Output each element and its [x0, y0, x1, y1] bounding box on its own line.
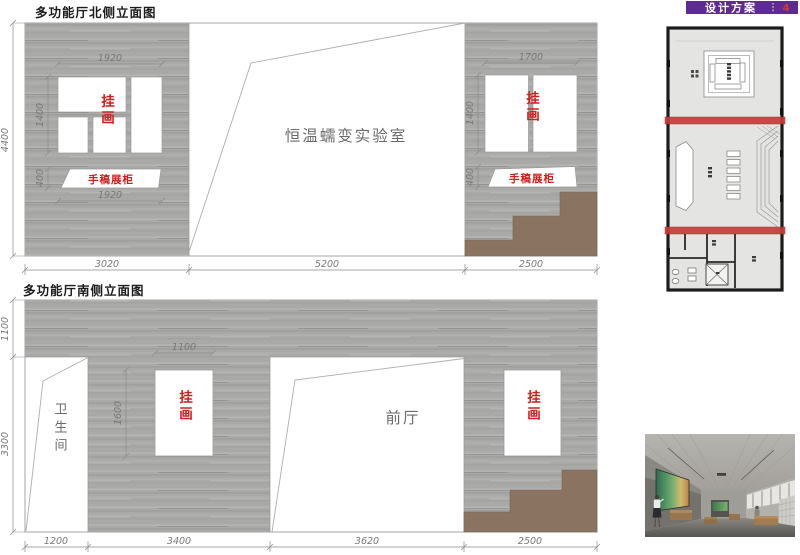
dim-north-right-cabinet: 400: [465, 168, 476, 186]
south-elevation: 多功能厅南侧立面图 卫生间 前厅 挂画 1100 1600 挂画: [0, 283, 600, 552]
north-right-cabinet-label: 手稿展柜: [509, 172, 555, 185]
dim-north-bottom-2: 5200: [315, 259, 339, 270]
north-title: 多功能厅北侧立面图: [35, 5, 157, 20]
banner-page-number: 4: [783, 3, 790, 14]
dim-south-art-width: 1100: [172, 342, 196, 353]
dim-north-bottom-1: 3020: [95, 259, 119, 270]
dim-south-bottom-1: 1200: [44, 536, 68, 547]
drawing-canvas: 设计方案 4 多功能厅北侧立面图 恒温蠕变实验室 挂画 手稿展柜: [0, 0, 800, 555]
dim-south-left-1: 1100: [0, 317, 11, 341]
plan-stage: [676, 142, 693, 211]
dim-north-right-width-top: 1700: [519, 52, 543, 63]
dim-north-left-cabinet: 400: [35, 169, 46, 187]
interior-render-photo: [645, 434, 795, 537]
dim-south-bottom-4: 2500: [518, 536, 542, 547]
north-total-dim-line: [10, 20, 25, 259]
foyer-label: 前厅: [385, 409, 420, 427]
plan-section-band-top: [665, 117, 785, 124]
north-elevation: 多功能厅北侧立面图 恒温蠕变实验室 挂画 手稿展柜 1920 1400 400 …: [0, 5, 600, 275]
banner-title: 设计方案: [705, 1, 757, 15]
dim-south-bottom-2: 3400: [167, 536, 191, 547]
floor-plan: [665, 28, 785, 290]
projector: [717, 473, 726, 476]
south-bottom-dim-line: [22, 541, 600, 552]
bathroom-label: 卫生间: [52, 402, 68, 456]
dim-south-art-height: 1600: [113, 401, 124, 425]
back-artwork: [713, 502, 728, 511]
banner: 设计方案 4: [686, 1, 798, 15]
north-lab-label: 恒温蠕变实验室: [285, 127, 408, 145]
dim-north-left-height: 1400: [35, 103, 46, 127]
south-title: 多功能厅南侧立面图: [23, 283, 145, 298]
dim-north-left-width-top: 1920: [98, 53, 122, 64]
south-top-wood-band: [25, 300, 597, 357]
dim-north-left-width-bottom: 1920: [98, 190, 122, 201]
dim-north-total-height: 4400: [0, 128, 11, 152]
dim-south-left-2: 3300: [0, 432, 11, 456]
plan-section-band-bottom: [665, 227, 785, 234]
lattice-screen: [779, 495, 795, 528]
north-left-art-label: 挂画: [98, 93, 115, 127]
design-sheet: 设计方案 4 多功能厅北侧立面图 恒温蠕变实验室 挂画 手稿展柜: [0, 0, 800, 555]
north-right-art-label: 挂画: [523, 90, 540, 124]
dim-north-bottom-3: 2500: [519, 259, 543, 270]
south-center-art-label: 挂画: [176, 389, 193, 423]
dim-north-right-height: 1400: [465, 101, 476, 125]
dim-south-bottom-3: 3620: [355, 536, 379, 547]
north-left-cabinet-label: 手稿展柜: [88, 173, 134, 186]
south-right-art-label: 挂画: [524, 389, 541, 423]
south-left-dim-line: [10, 297, 25, 535]
